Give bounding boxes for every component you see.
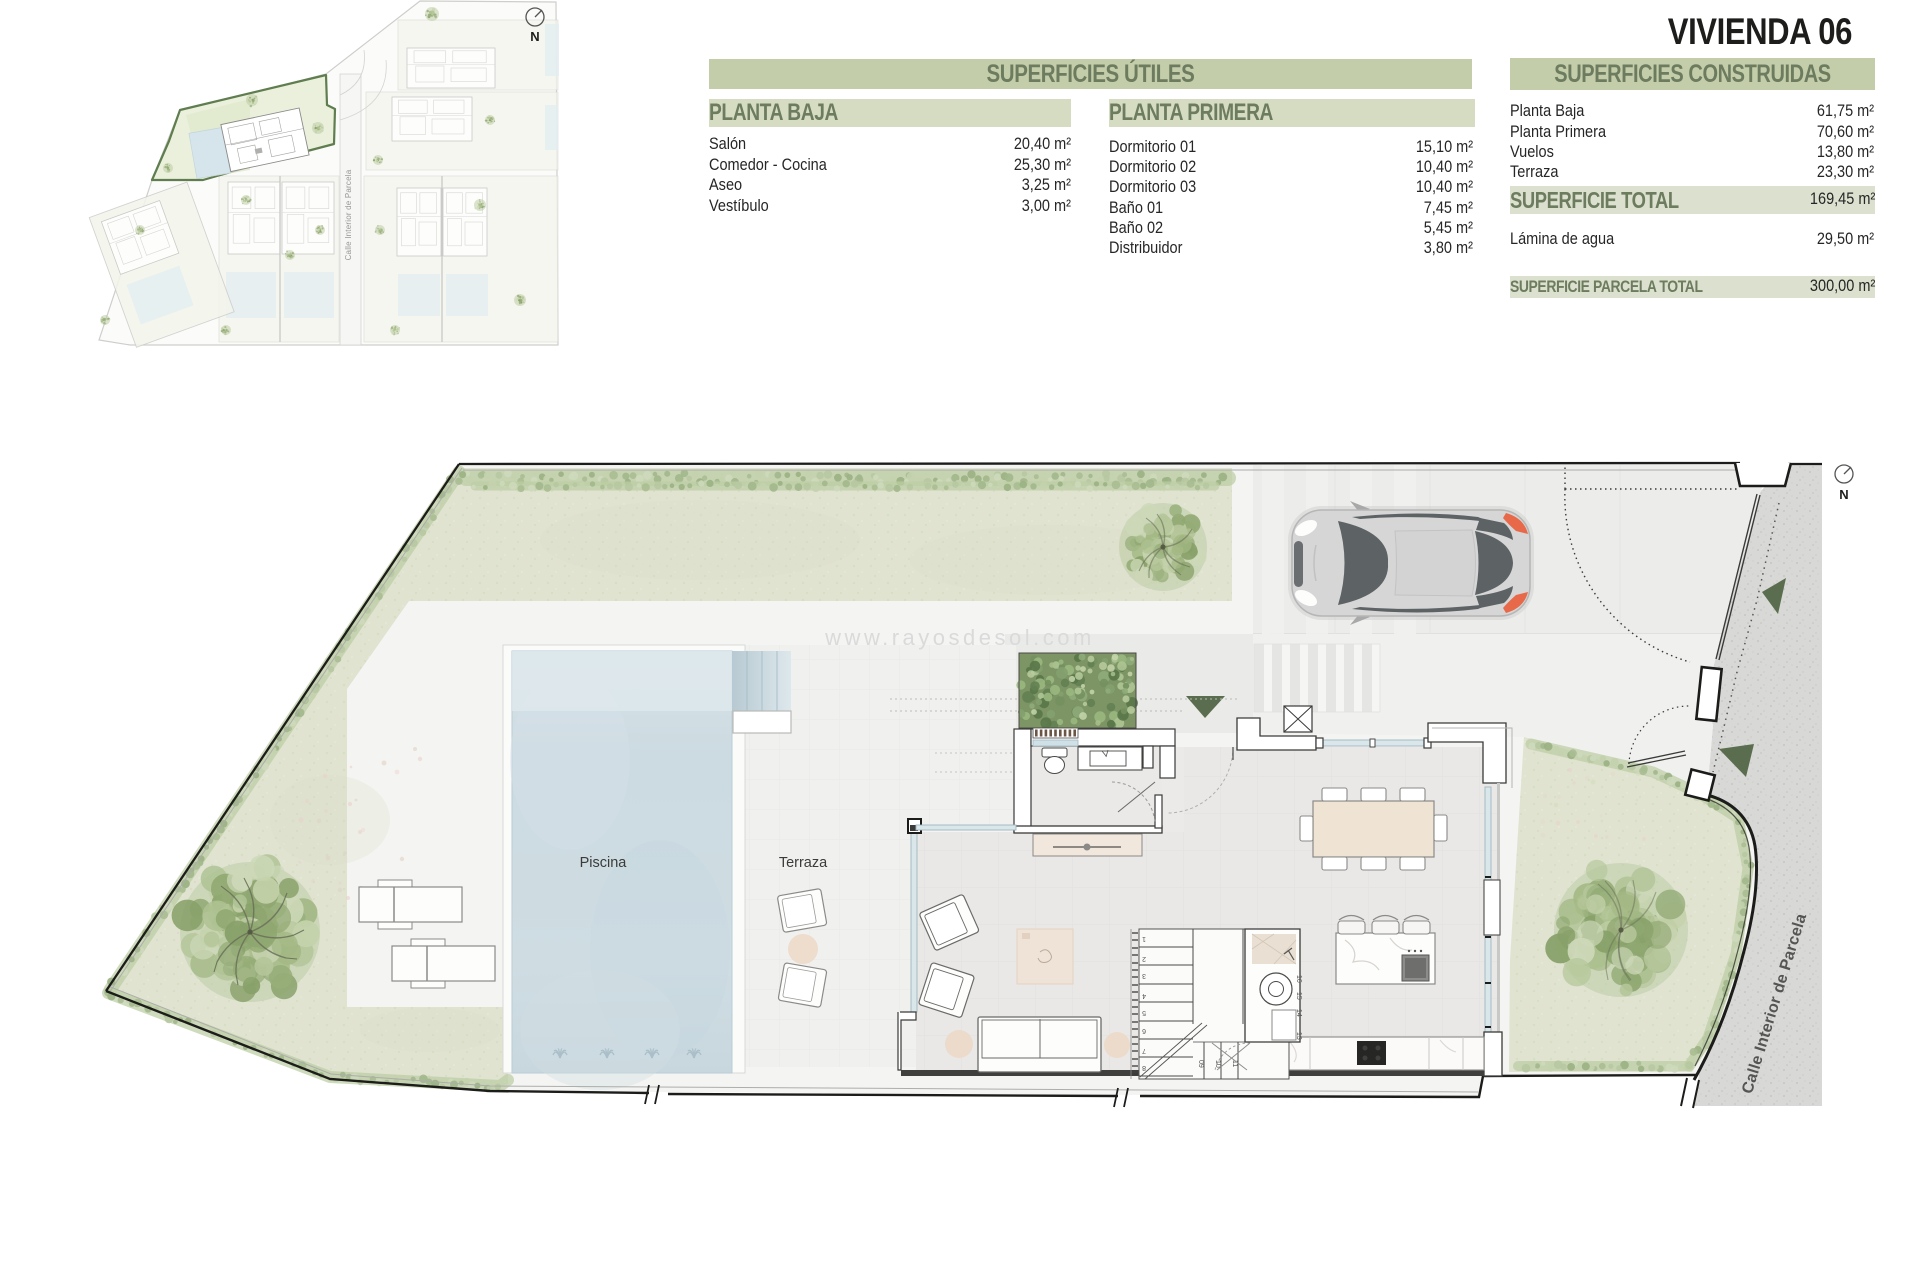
svg-text:5: 5 — [1142, 1009, 1146, 1016]
svg-text:N: N — [1839, 487, 1848, 502]
svg-text:Piscina: Piscina — [580, 855, 628, 871]
svg-text:4: 4 — [1142, 992, 1146, 999]
svg-text:8: 8 — [1142, 1064, 1146, 1071]
svg-text:15: 15 — [1295, 992, 1302, 1000]
svg-text:3: 3 — [1142, 972, 1146, 979]
svg-text:11: 11 — [1231, 1060, 1238, 1067]
svg-text:16: 16 — [1295, 975, 1302, 983]
svg-text:2: 2 — [1142, 955, 1146, 962]
svg-text:09: 09 — [1197, 1060, 1204, 1068]
svg-text:13: 13 — [1295, 1032, 1302, 1040]
svg-text:6: 6 — [1142, 1027, 1146, 1034]
svg-text:www.rayosdesol.com: www.rayosdesol.com — [824, 625, 1095, 650]
svg-text:Terraza: Terraza — [779, 855, 828, 871]
svg-text:14: 14 — [1295, 1009, 1302, 1017]
svg-text:7: 7 — [1142, 1047, 1146, 1054]
svg-text:Calle Interior de Parcela: Calle Interior de Parcela — [344, 169, 353, 260]
svg-text:1: 1 — [1142, 935, 1146, 942]
svg-text:N: N — [530, 29, 539, 44]
